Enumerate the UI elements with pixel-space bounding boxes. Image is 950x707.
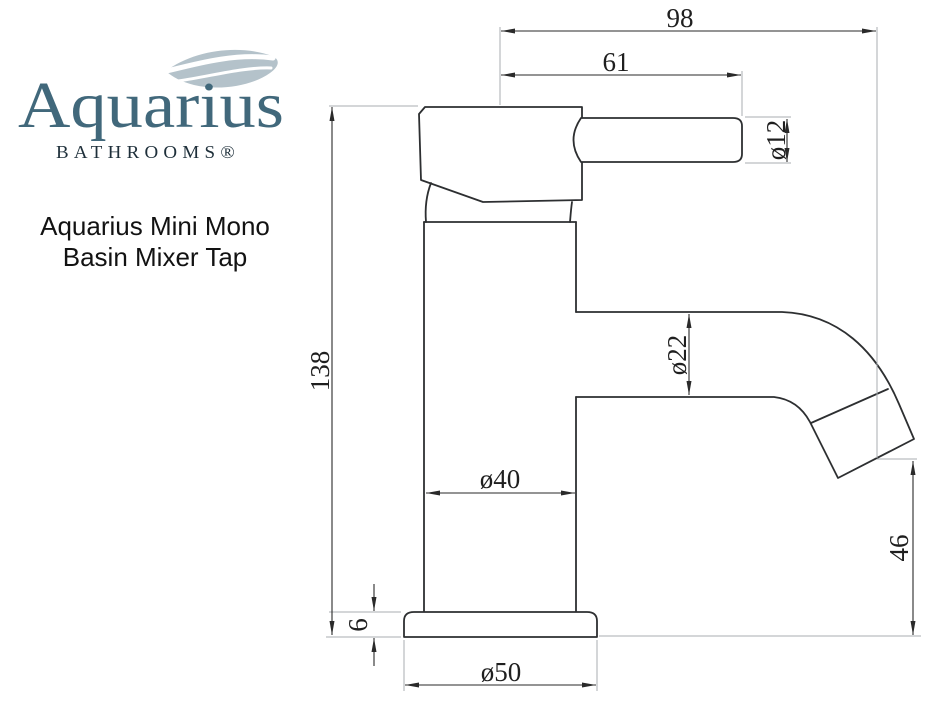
tap-handle-lever bbox=[574, 118, 743, 162]
dim-label-overall-height: 138 bbox=[305, 351, 335, 392]
dim-label-spout-diameter: ø22 bbox=[662, 335, 692, 376]
tap-technical-drawing: 98 61 ø12 138 ø22 ø40 46 6 ø50 bbox=[0, 0, 950, 707]
tap-base bbox=[404, 612, 597, 637]
dim-label-body-diameter: ø40 bbox=[480, 464, 521, 494]
dim-label-base-height: 6 bbox=[343, 618, 373, 632]
tap-outline bbox=[404, 107, 914, 637]
dim-label-base-diameter: ø50 bbox=[481, 657, 522, 687]
dim-label-handle-reach: 61 bbox=[603, 47, 630, 77]
tap-neck-right-arc bbox=[570, 202, 572, 222]
dim-label-overall-reach: 98 bbox=[667, 3, 694, 33]
dim-label-spout-outlet-height: 46 bbox=[884, 535, 914, 562]
tap-neck-left-arc bbox=[426, 183, 431, 222]
tap-spout bbox=[576, 312, 914, 478]
dim-label-handle-diameter: ø12 bbox=[761, 120, 791, 161]
tap-head bbox=[419, 107, 582, 202]
